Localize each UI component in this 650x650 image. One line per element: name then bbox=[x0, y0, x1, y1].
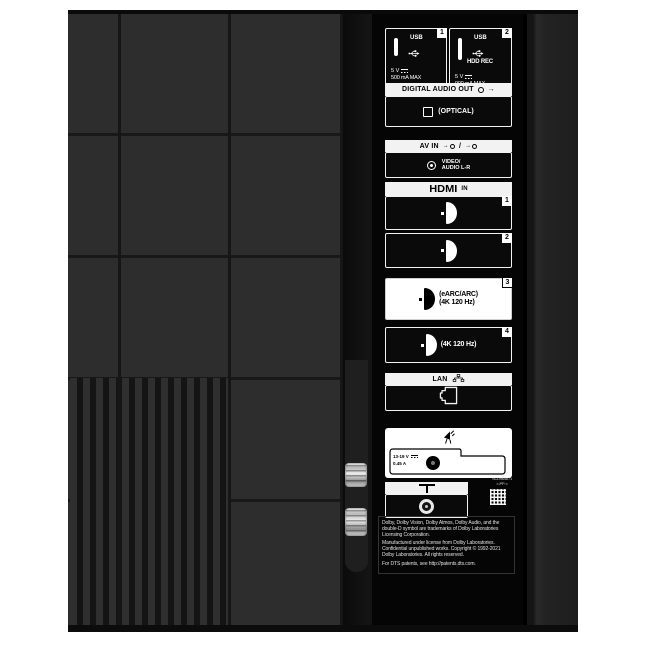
hdmi-dshape bbox=[424, 288, 435, 310]
hdmi-in-label: IN bbox=[461, 186, 467, 192]
satellite-current: 0.45 A bbox=[393, 461, 406, 466]
antenna-header bbox=[385, 482, 468, 494]
usb-port-1-label: 1 USB 5 V 500 mA MAX bbox=[385, 28, 447, 86]
qr-code bbox=[490, 489, 506, 505]
voltage-value: 5 V bbox=[391, 68, 399, 74]
dc-symbol-icon bbox=[465, 75, 472, 79]
usb-current-max: 500 mA MAX bbox=[391, 75, 421, 81]
av-in-header: AV IN → / → bbox=[385, 140, 512, 152]
port-number-badge: 1 bbox=[502, 196, 512, 206]
av-in-jack-label: VIDEO/ AUDIO L-R bbox=[442, 159, 470, 171]
audio-label: AUDIO L-R bbox=[442, 165, 470, 171]
hdmi-dshape bbox=[426, 334, 437, 356]
port-number-badge: 3 bbox=[502, 278, 512, 288]
satellite-in-label: 13-19 V 0.45 A bbox=[385, 428, 512, 478]
voltage-value: 5 V bbox=[455, 74, 463, 80]
audio-out-arrow-icon: → bbox=[488, 87, 495, 93]
optical-label: (OPTICAL) bbox=[438, 108, 473, 115]
hdmi-port-3-label: 3 (eARC/ARC) (4K 120 Hz) bbox=[385, 278, 512, 320]
hdmi-port-1-label: 1 bbox=[385, 196, 512, 230]
separator: / bbox=[459, 143, 461, 150]
port-number-badge: 1 bbox=[437, 28, 447, 38]
usb-label: USB bbox=[474, 35, 487, 41]
tv-top-edge bbox=[68, 10, 578, 14]
av-input-icon: → bbox=[443, 143, 455, 149]
satellite-voltage: 13-19 V bbox=[393, 454, 418, 459]
hdmi-connector-icon bbox=[419, 288, 435, 310]
antenna-port-label bbox=[385, 494, 468, 518]
optical-port-icon bbox=[423, 107, 433, 117]
port-number-badge: 4 bbox=[502, 327, 512, 337]
usb-voltage: 5 V bbox=[455, 74, 472, 80]
dc-symbol-icon bbox=[411, 455, 418, 459]
port-number-badge: 2 bbox=[502, 28, 512, 38]
hdmi-port-4-caption: (4K 120 Hz) bbox=[441, 341, 477, 350]
4k120-label: (4K 120 Hz) bbox=[439, 299, 478, 308]
minijack-icon bbox=[427, 161, 436, 170]
arrow-glyph: → bbox=[465, 143, 471, 149]
av-in-title: AV IN bbox=[420, 143, 439, 150]
hdmi-port-3-caption: (eARC/ARC) (4K 120 Hz) bbox=[439, 291, 478, 308]
hdmi-port-4-label: 4 (4K 120 Hz) bbox=[385, 327, 512, 363]
usb-label: USB bbox=[410, 35, 423, 41]
panel-seam bbox=[68, 133, 343, 136]
av-input-icon: → bbox=[465, 143, 477, 149]
hdmi-dshape bbox=[446, 240, 457, 262]
rf-connector-icon bbox=[419, 499, 434, 514]
hdmi-dot bbox=[419, 298, 422, 301]
usb-trident-icon bbox=[408, 45, 420, 63]
antenna-icon bbox=[419, 484, 435, 493]
arrow-glyph: → bbox=[443, 143, 449, 149]
panel-seam bbox=[228, 10, 231, 625]
lan-header: LAN bbox=[385, 373, 512, 385]
screw bbox=[345, 508, 367, 536]
hdd-rec-label: HDD REC bbox=[467, 59, 493, 65]
tv-back-body: 1 USB 5 V 500 mA MAX 2 USB HDD REC 5 V bbox=[68, 10, 578, 632]
lan-port-label bbox=[385, 385, 512, 411]
hdmi-dot bbox=[441, 249, 444, 252]
port-number-badge: 2 bbox=[502, 233, 512, 243]
digital-audio-out-title: DIGITAL AUDIO OUT bbox=[402, 86, 474, 93]
hdmi-connector-icon bbox=[441, 202, 457, 224]
audio-out-icon bbox=[478, 87, 484, 93]
av-in-port-label: VIDEO/ AUDIO L-R bbox=[385, 152, 512, 178]
lan-title: LAN bbox=[433, 376, 448, 383]
circle-glyph bbox=[472, 144, 477, 149]
tv-rear-photo: 1 USB 5 V 500 mA MAX 2 USB HDD REC 5 V bbox=[0, 0, 650, 650]
serial-text: SCD964671 >-PP-< bbox=[484, 476, 520, 486]
usb-slot-icon bbox=[458, 38, 462, 60]
hdmi-connector-icon bbox=[441, 240, 457, 262]
hdmi-dot bbox=[441, 212, 444, 215]
center-edge-strip bbox=[343, 10, 372, 632]
legal-text-block: Dolby, Dolby Vision, Dolby Atmos, Dolby … bbox=[378, 516, 515, 574]
hdmi-in-header: HDMI IN bbox=[385, 182, 512, 196]
panel-seam bbox=[68, 255, 343, 258]
network-icon bbox=[452, 374, 465, 384]
dts-line: For DTS patents, see http://patents.dts.… bbox=[382, 561, 511, 567]
usb-voltage: 5 V bbox=[391, 68, 408, 74]
hdmi-dot bbox=[421, 344, 424, 347]
voltage-value: 13-19 V bbox=[393, 454, 409, 459]
usb-slot-icon bbox=[394, 38, 398, 56]
hdmi-port-2-label: 2 bbox=[385, 233, 512, 268]
rj45-port-icon bbox=[438, 385, 459, 411]
satellite-dish-icon bbox=[441, 430, 456, 450]
screw bbox=[345, 463, 367, 487]
satellite-f-connector-icon bbox=[426, 456, 440, 470]
tv-side-edge bbox=[527, 10, 578, 632]
dc-symbol-icon bbox=[401, 69, 408, 73]
back-panel-grid bbox=[68, 10, 343, 632]
optical-out-port-label: (OPTICAL) bbox=[385, 96, 512, 127]
digital-audio-out-header: DIGITAL AUDIO OUT → bbox=[385, 83, 512, 96]
dolby-line: Dolby Laboratories. All rights reserved. bbox=[382, 552, 511, 558]
tv-bottom-edge bbox=[68, 625, 578, 632]
panel-seam bbox=[118, 10, 121, 625]
ventilation-slats bbox=[70, 378, 228, 625]
hdmi-dshape bbox=[446, 202, 457, 224]
earc-arc-label: (eARC/ARC) bbox=[439, 291, 478, 300]
serial-line: >-PP-< bbox=[484, 481, 520, 486]
hdmi-connector-icon bbox=[421, 334, 437, 356]
dolby-line: Licensing Corporation. bbox=[382, 532, 511, 538]
connector-panel: 1 USB 5 V 500 mA MAX 2 USB HDD REC 5 V bbox=[372, 10, 523, 632]
circle-glyph bbox=[450, 144, 455, 149]
hdmi-logo: HDMI bbox=[429, 183, 457, 194]
